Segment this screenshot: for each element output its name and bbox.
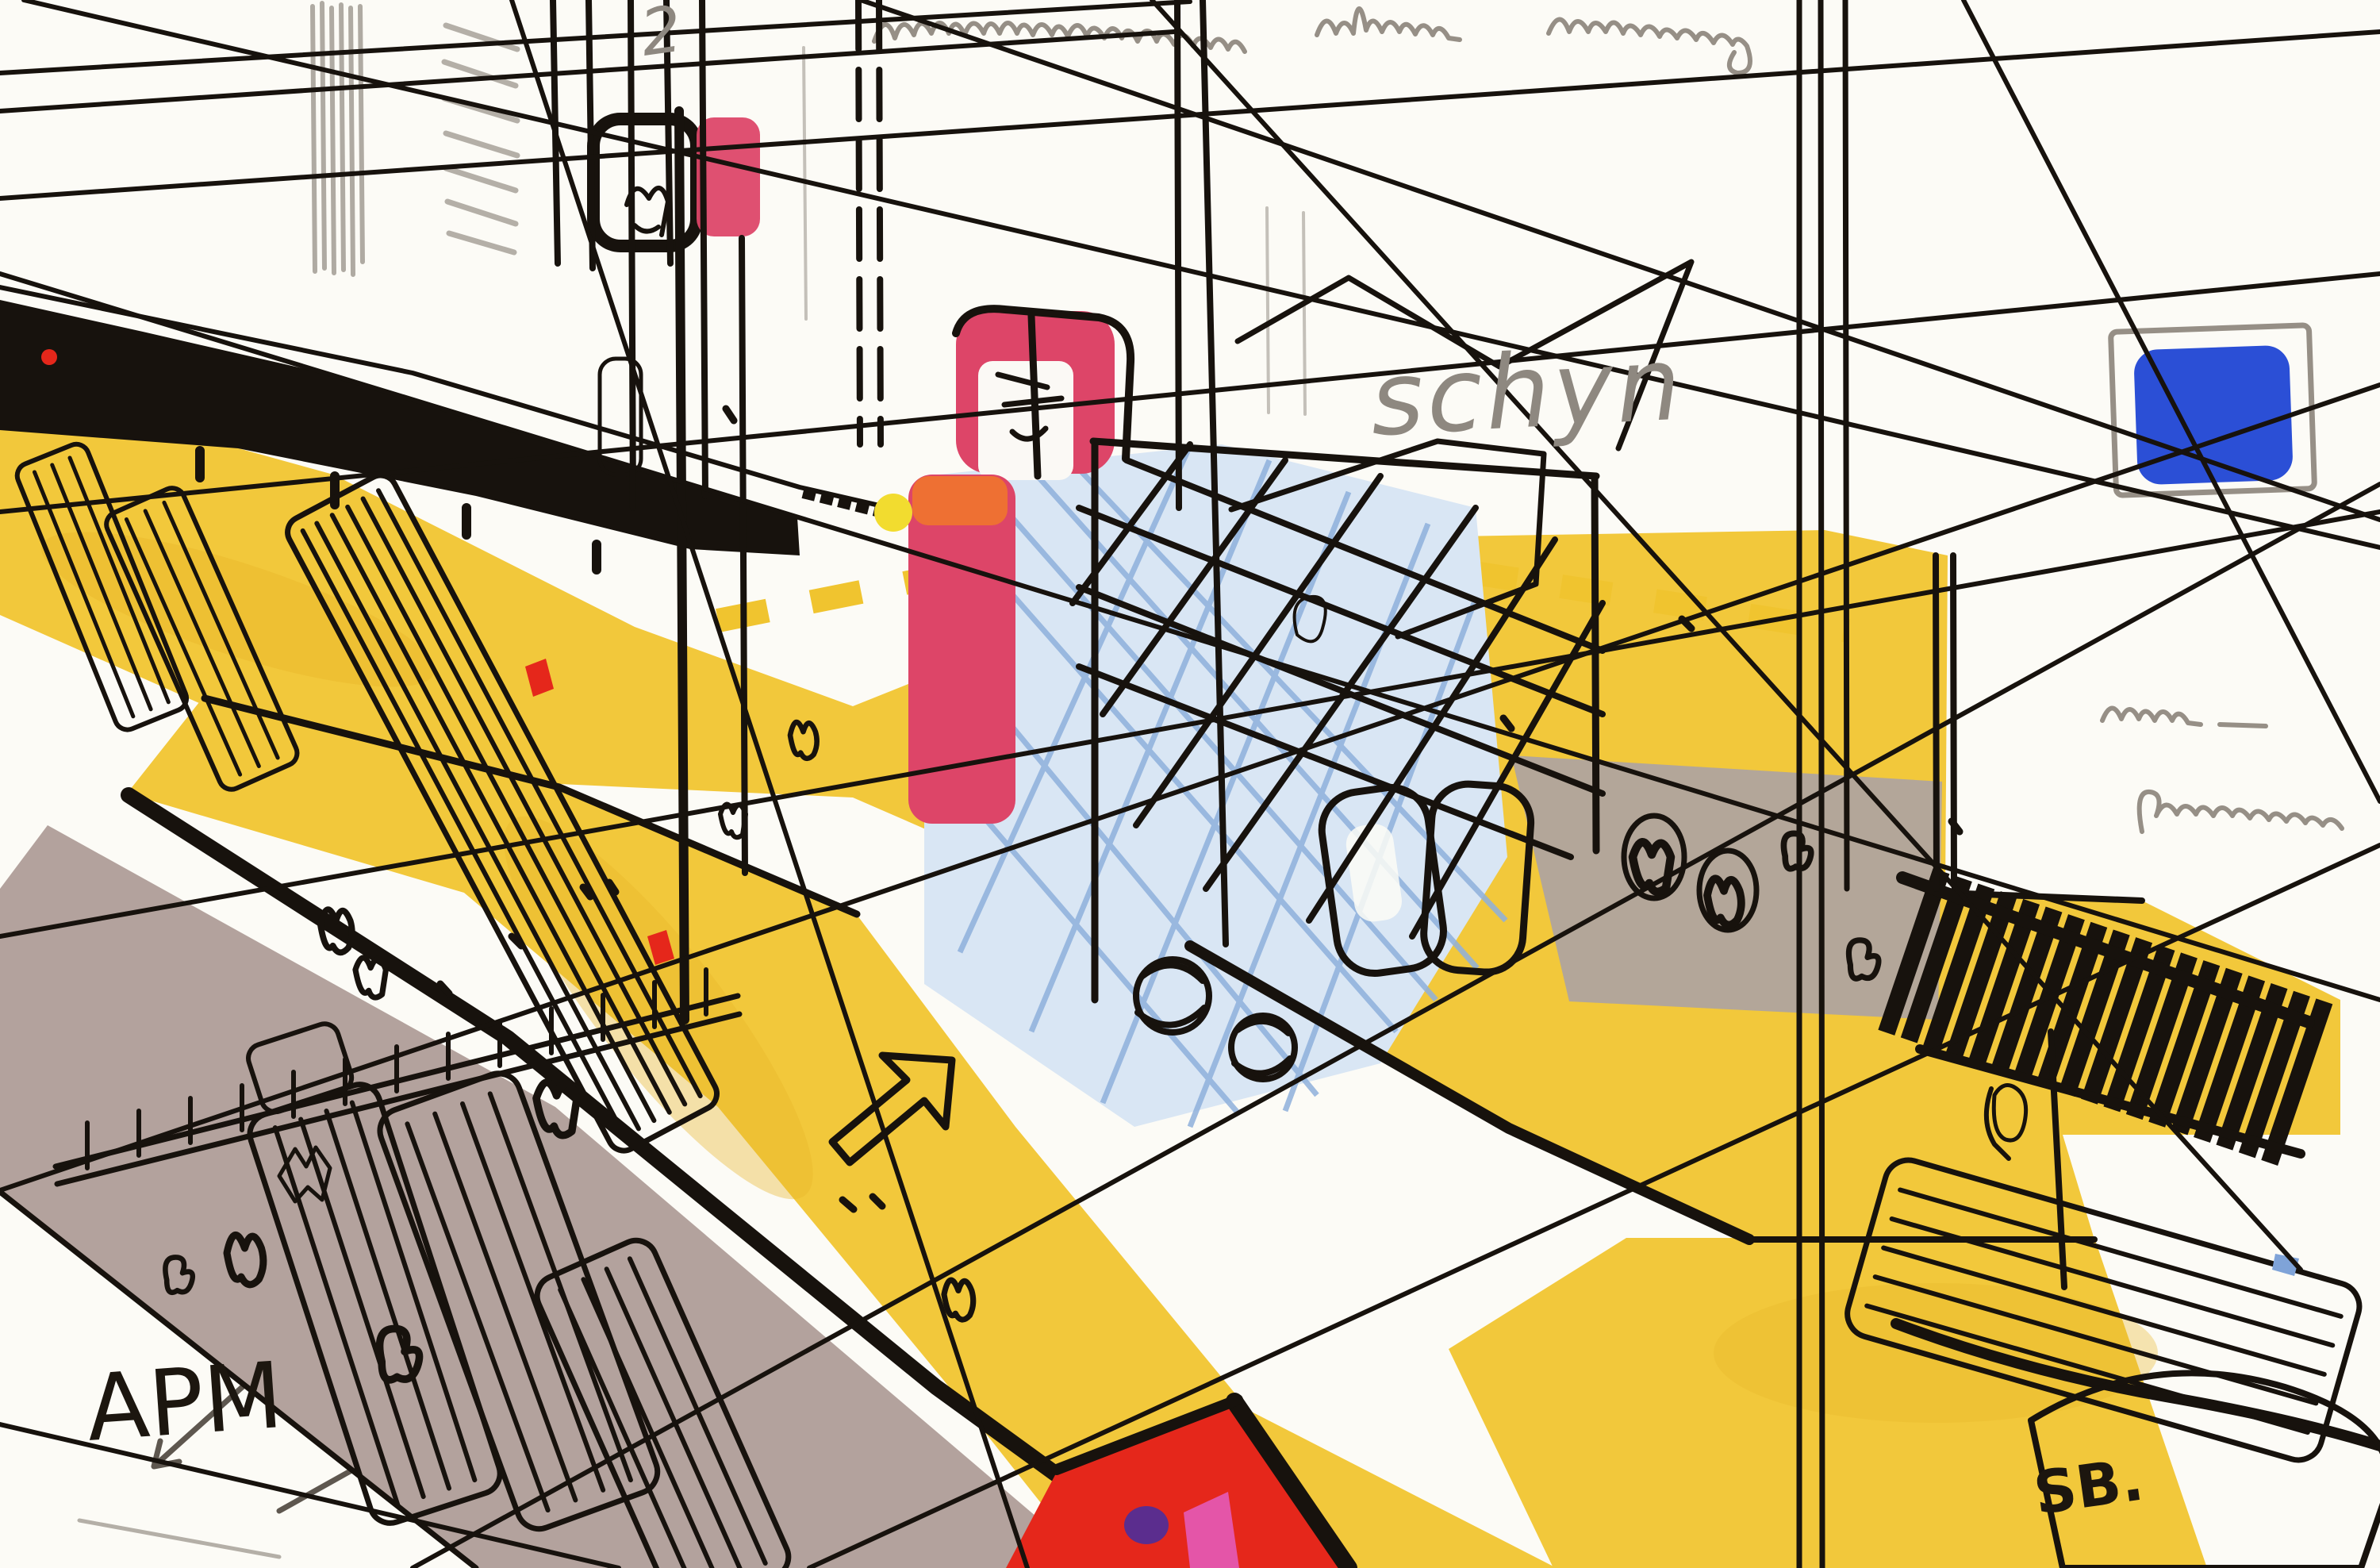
- architectural-sketch: 2 schyn APM SB.: [0, 0, 2380, 1568]
- orange-accent: [912, 476, 1008, 525]
- purple-dot: [1124, 1506, 1169, 1544]
- sketch-canvas: 2 schyn APM SB.: [0, 0, 2380, 1568]
- red-dot: [41, 349, 57, 365]
- pencil-word-schyn: schyn: [1368, 325, 1687, 459]
- yellow-dab: [874, 494, 912, 532]
- ground-label-apm: APM: [83, 1343, 286, 1462]
